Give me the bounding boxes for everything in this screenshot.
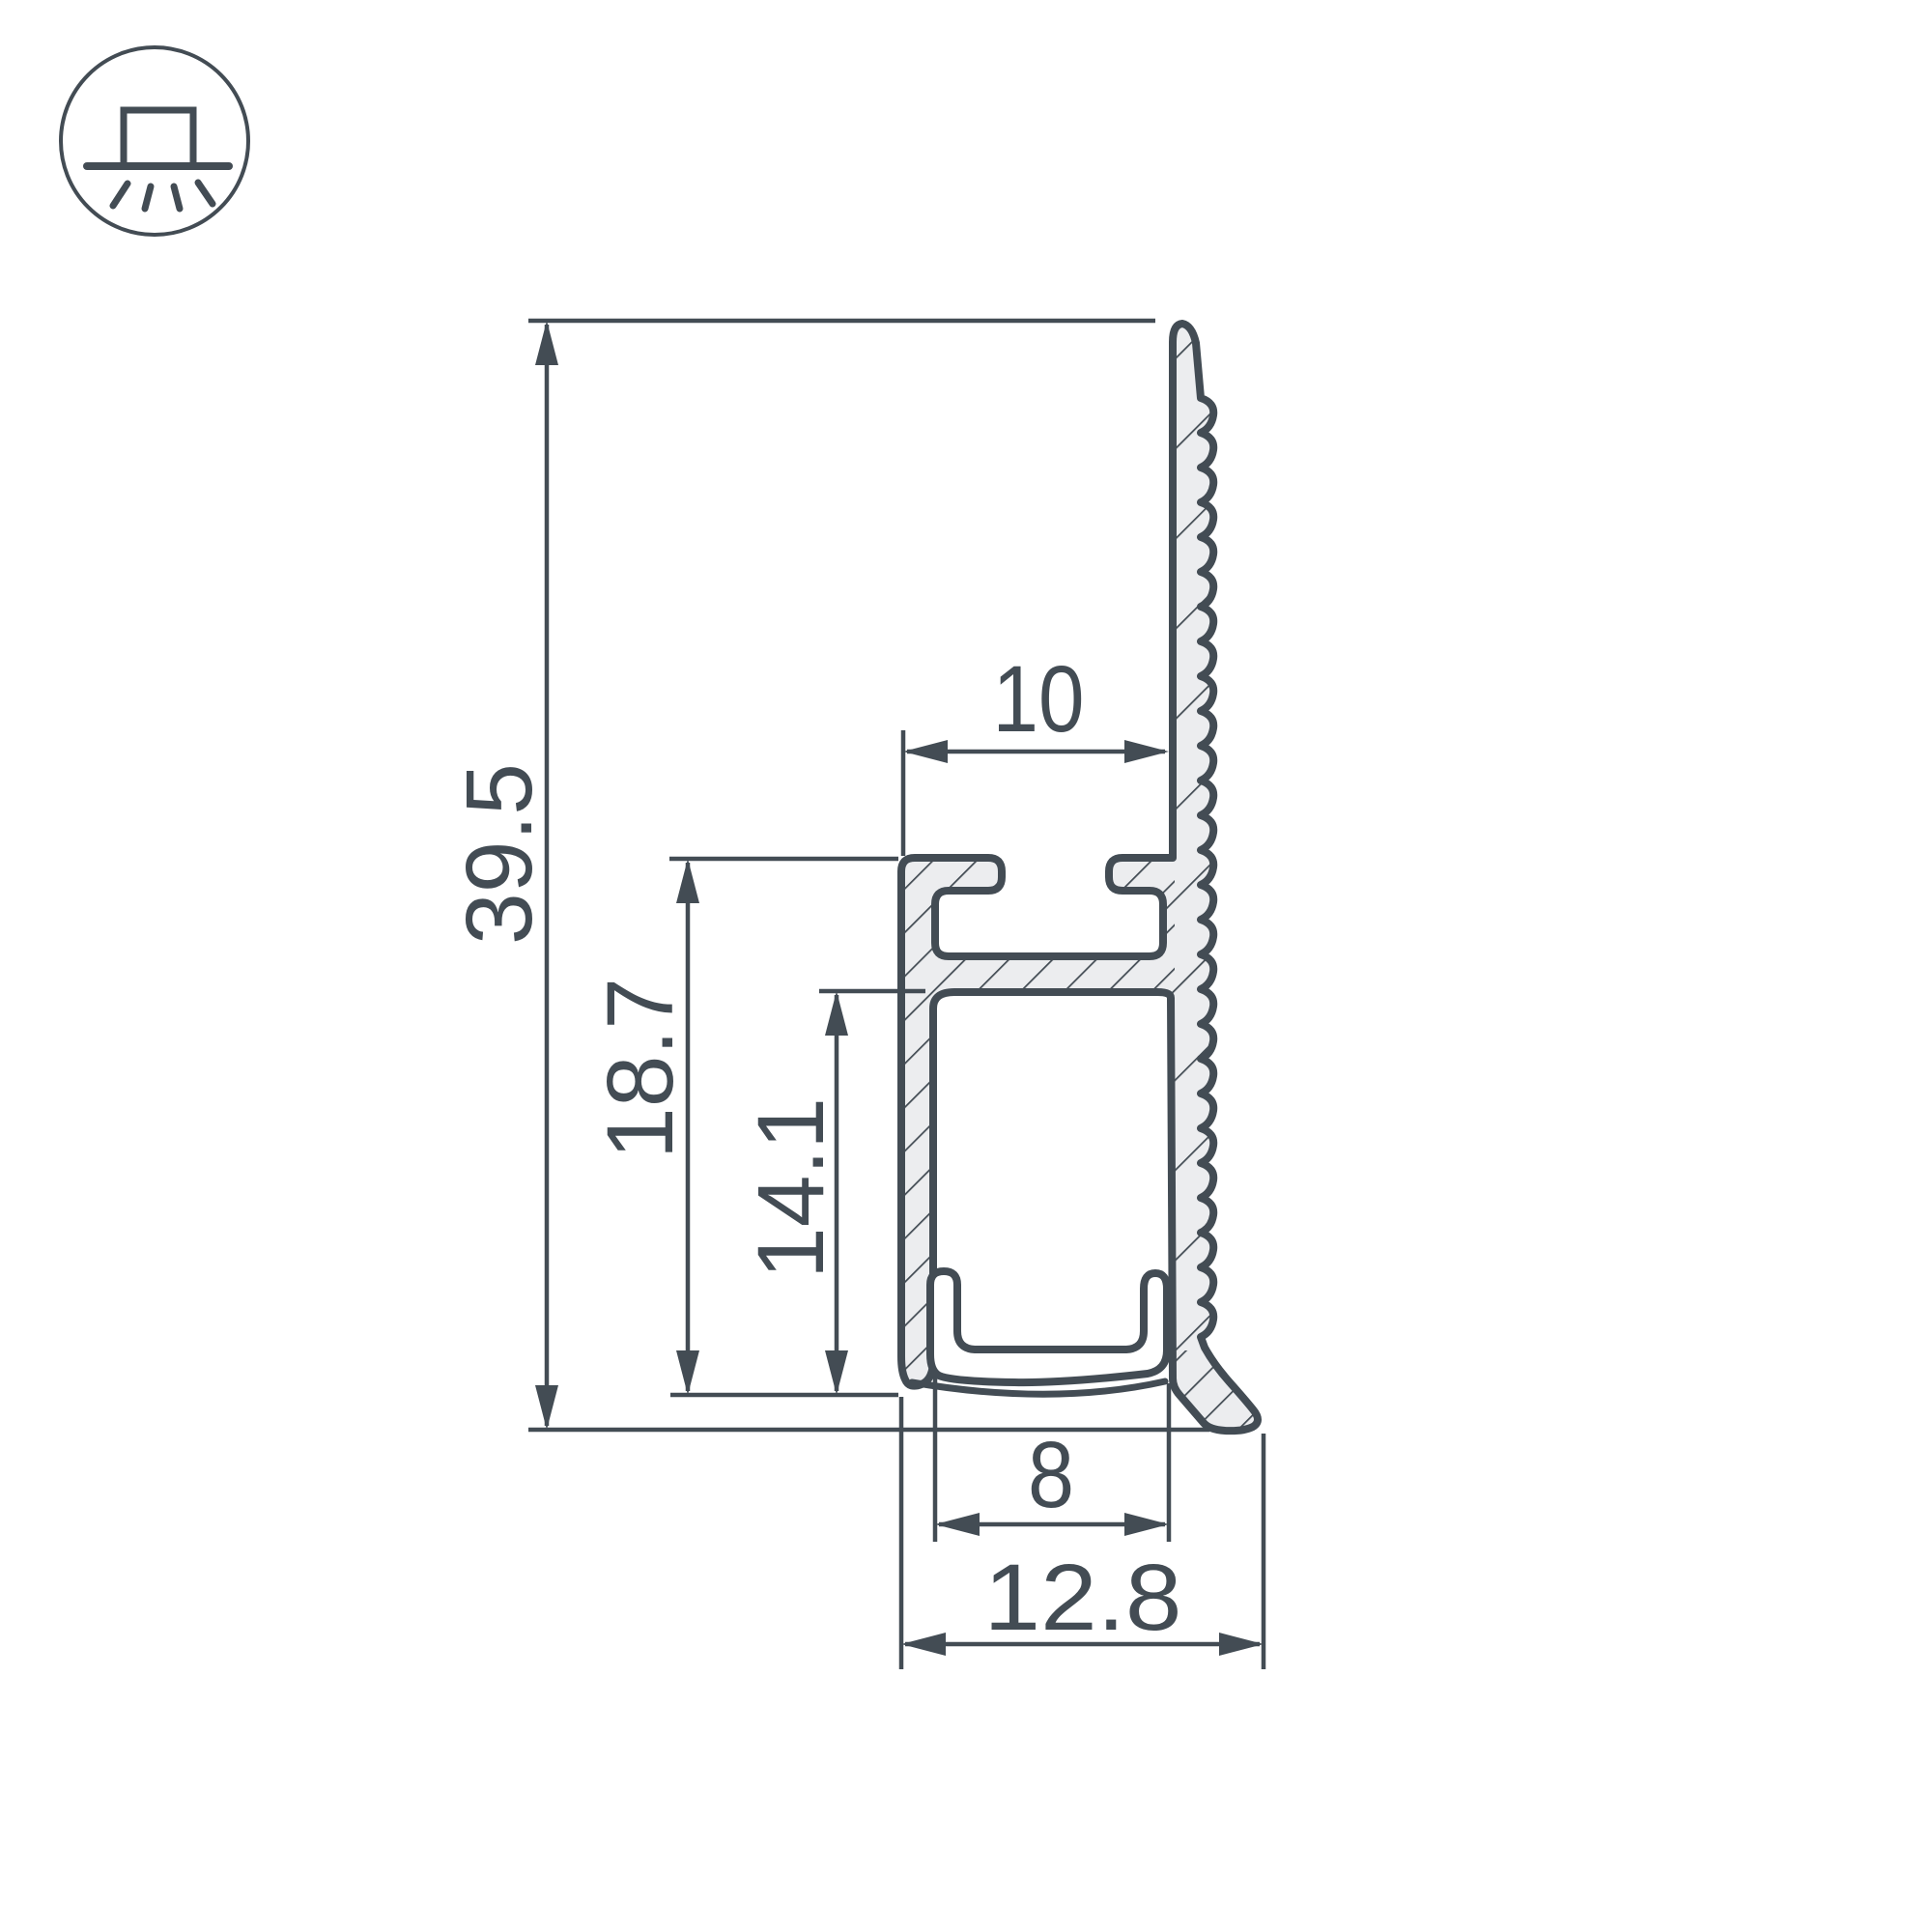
overall-height-label: 39.5 xyxy=(446,763,552,945)
profile-section xyxy=(889,309,1291,1442)
groove-width-label: 10 xyxy=(993,646,1085,752)
icon-light-rays xyxy=(113,183,213,209)
drawing-canvas: 39.5 18.7 14.1 10 8 12.8 xyxy=(0,0,1932,1932)
arrowhead-up xyxy=(676,859,699,903)
led-channel-insert xyxy=(930,1271,1167,1382)
icon-fixture-square xyxy=(124,110,193,165)
arrowhead-down xyxy=(676,1350,699,1395)
body-height-label: 18.7 xyxy=(587,978,693,1159)
arrowhead-left xyxy=(935,1513,980,1536)
channel-width-label: 8 xyxy=(1028,1422,1074,1527)
arrowhead-up xyxy=(825,991,848,1036)
overall-width-label: 12.8 xyxy=(984,1545,1182,1650)
arrowhead-right xyxy=(1124,740,1169,763)
arrowhead-left xyxy=(903,740,948,763)
channel-height-label: 14.1 xyxy=(738,1097,843,1279)
arrowhead-right xyxy=(1124,1513,1169,1536)
icon-circle xyxy=(61,47,248,235)
arrowhead-right xyxy=(1219,1633,1264,1656)
profile-drawing: 39.5 18.7 14.1 10 8 12.8 xyxy=(0,0,1932,1932)
arrowhead-down xyxy=(535,1385,558,1430)
arrowhead-left xyxy=(901,1633,946,1656)
arrowhead-up xyxy=(535,321,558,365)
arrowhead-down xyxy=(825,1350,848,1395)
surface-mount-light-icon xyxy=(61,47,248,235)
